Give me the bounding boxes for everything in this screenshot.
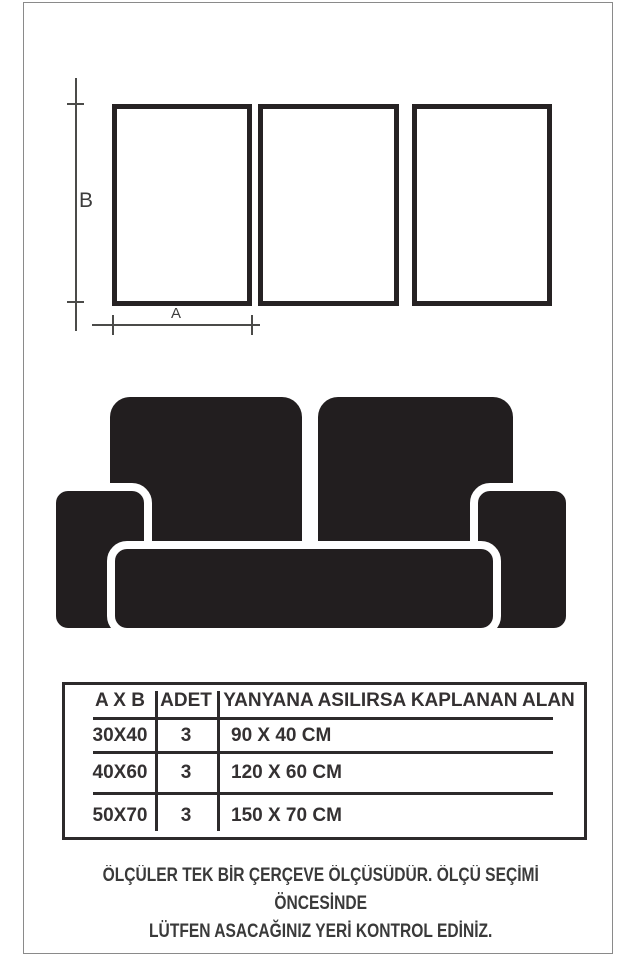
header-area: YANYANA ASILIRSA KAPLANAN ALAN (217, 690, 581, 712)
footer-line-1: ÖLÇÜLER TEK BİR ÇERÇEVE ÖLÇÜSÜDÜR. ÖLÇÜ … (58, 862, 583, 918)
footer-note: ÖLÇÜLER TEK BİR ÇERÇEVE ÖLÇÜSÜDÜR. ÖLÇÜ … (58, 862, 583, 946)
dimension-line-a (92, 324, 260, 326)
table-row: 40X60 3 120 X 60 CM (65, 754, 584, 792)
cell-size: 50X70 (65, 805, 155, 827)
cell-qty: 3 (155, 805, 217, 827)
table-header-row: A X B ADET YANYANA ASILIRSA KAPLANAN ALA… (65, 685, 584, 717)
cell-area: 150 X 70 CM (217, 805, 581, 827)
dimension-line-b (75, 78, 77, 331)
footer-line-2: LÜTFEN ASACAĞINIZ YERİ KONTROL EDİNİZ. (58, 918, 583, 946)
table-row: 30X40 3 90 X 40 CM (65, 720, 584, 751)
frame-outline-2 (258, 104, 399, 306)
cell-size: 30X40 (65, 725, 155, 747)
dimension-tick-b-bottom (67, 301, 84, 303)
size-guide-infographic: B A A X B ADET YANYANA ASILIRSA KAPLANAN… (0, 0, 640, 960)
cell-size: 40X60 (65, 762, 155, 784)
header-qty: ADET (155, 690, 217, 712)
dimension-tick-a-right (251, 315, 253, 335)
table-row: 50X70 3 150 X 70 CM (65, 795, 584, 837)
header-size: A X B (65, 690, 155, 712)
frame-outline-1 (112, 104, 252, 306)
cell-area: 120 X 60 CM (217, 762, 581, 784)
frame-outline-3 (412, 104, 552, 306)
cell-qty: 3 (155, 762, 217, 784)
cell-qty: 3 (155, 725, 217, 747)
dimension-tick-b-top (67, 103, 84, 105)
dimension-label-a: A (171, 305, 181, 322)
dimension-label-b: B (79, 189, 93, 213)
dimension-tick-a-left (112, 315, 114, 335)
size-table: A X B ADET YANYANA ASILIRSA KAPLANAN ALA… (62, 682, 587, 840)
sofa-icon (40, 390, 576, 640)
cell-area: 90 X 40 CM (217, 725, 581, 747)
